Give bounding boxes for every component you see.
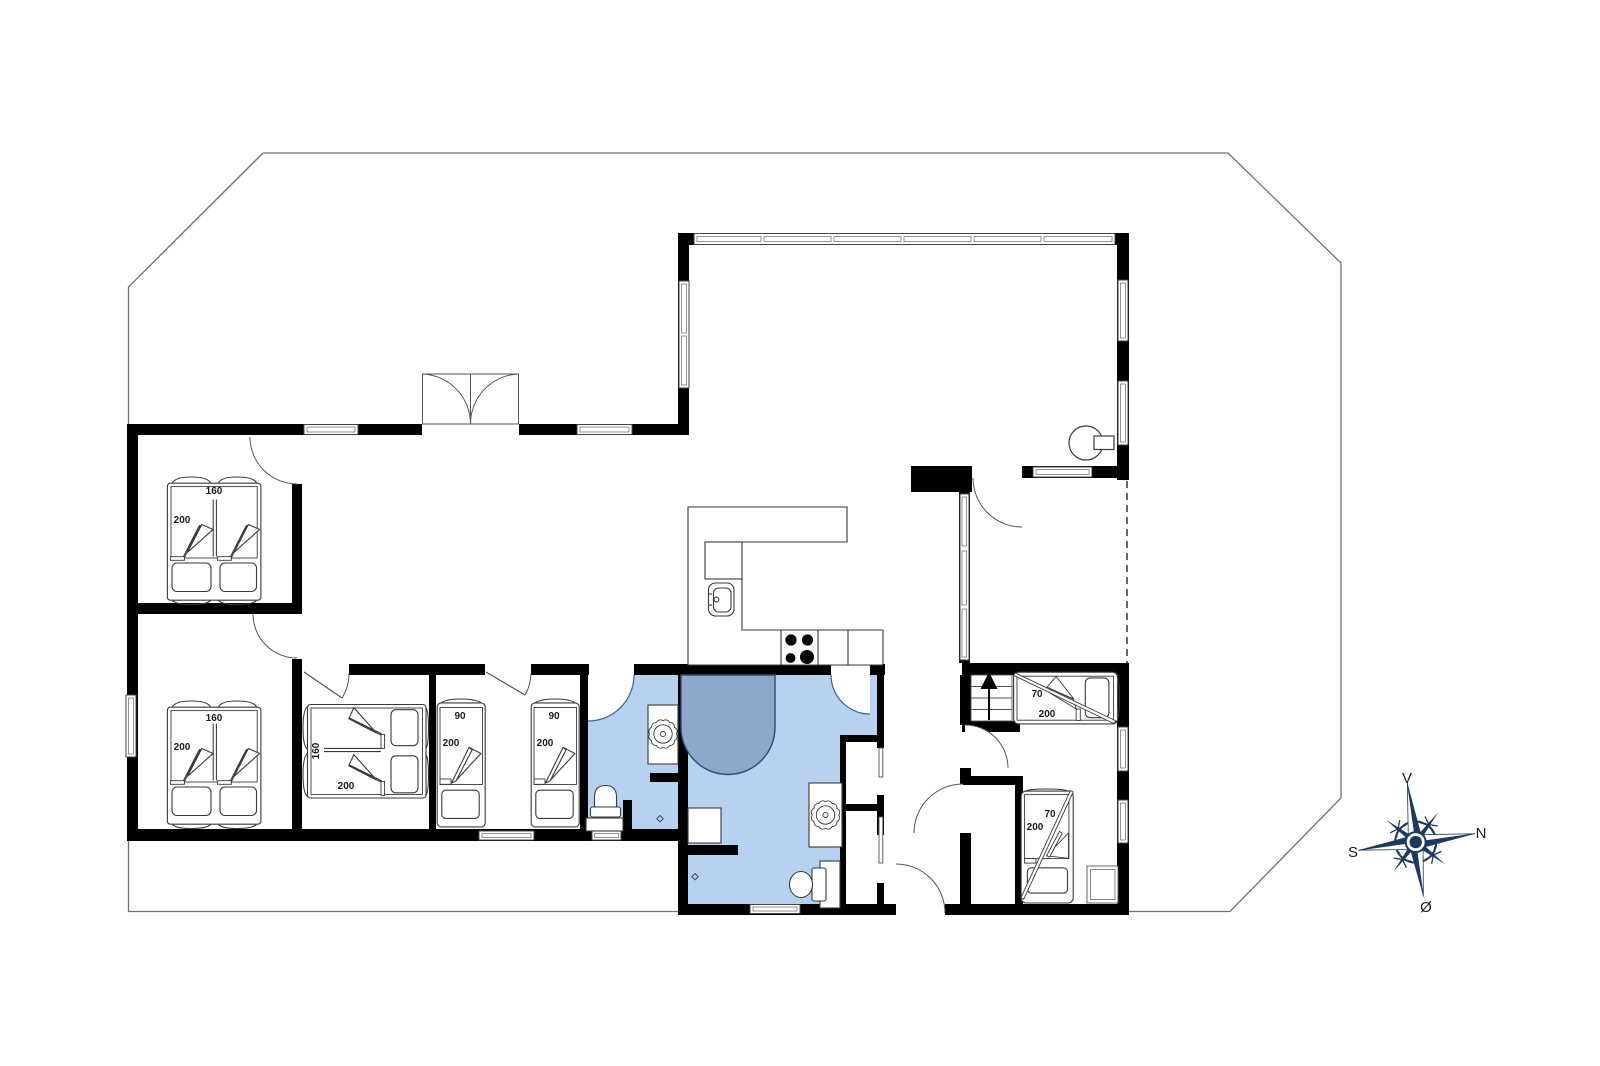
svg-text:70: 70 bbox=[1044, 809, 1056, 820]
svg-text:90: 90 bbox=[548, 711, 560, 722]
svg-text:200: 200 bbox=[174, 742, 191, 753]
svg-text:160: 160 bbox=[206, 486, 223, 497]
svg-text:200: 200 bbox=[537, 738, 554, 749]
svg-text:N: N bbox=[1476, 825, 1487, 842]
svg-text:S: S bbox=[1348, 844, 1358, 861]
svg-text:160: 160 bbox=[206, 713, 223, 724]
svg-text:70: 70 bbox=[1031, 689, 1043, 700]
svg-text:V: V bbox=[1402, 770, 1412, 787]
svg-text:90: 90 bbox=[454, 711, 466, 722]
svg-text:200: 200 bbox=[443, 738, 460, 749]
svg-text:200: 200 bbox=[338, 781, 355, 792]
svg-text:200: 200 bbox=[1039, 709, 1056, 720]
svg-text:Ø: Ø bbox=[1420, 899, 1432, 916]
svg-text:160: 160 bbox=[311, 742, 322, 759]
svg-text:200: 200 bbox=[1027, 822, 1044, 833]
svg-text:200: 200 bbox=[174, 515, 191, 526]
